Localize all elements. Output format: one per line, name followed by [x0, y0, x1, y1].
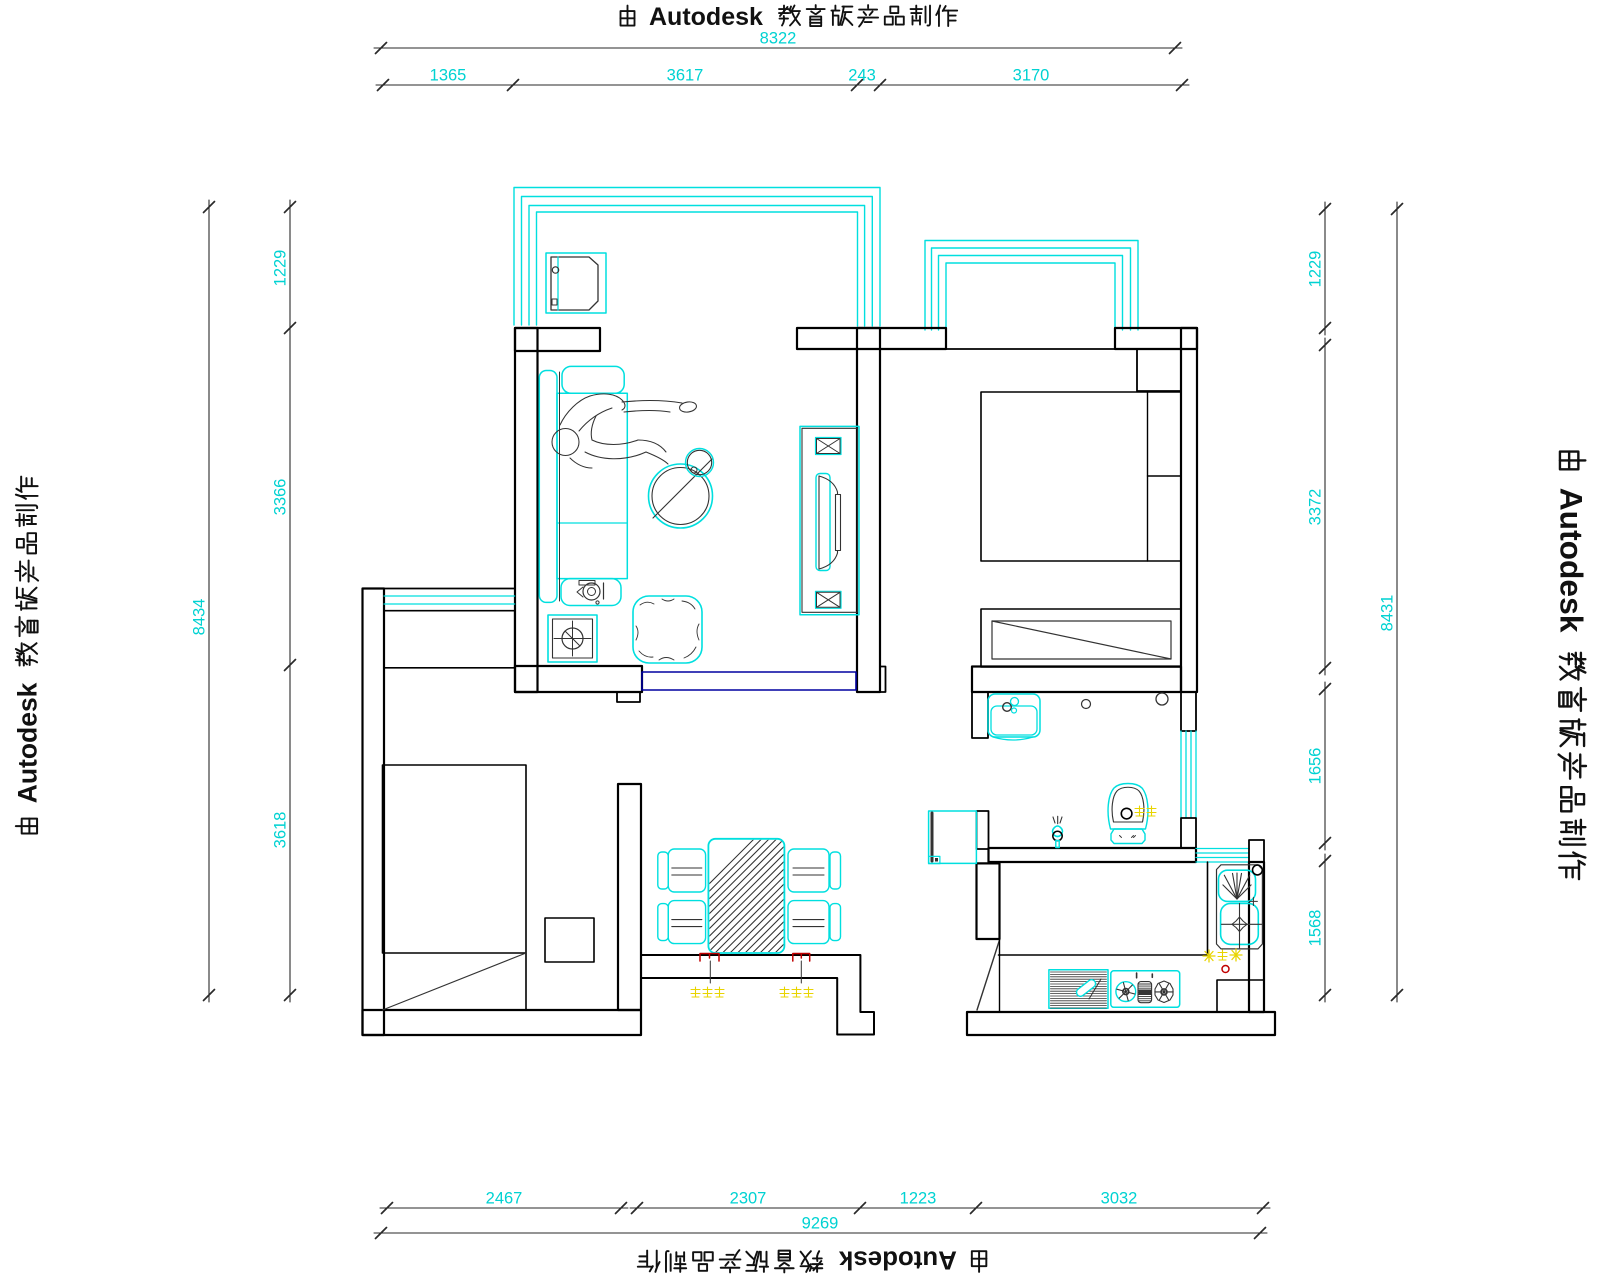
svg-text:1656: 1656 — [1307, 748, 1325, 785]
svg-text:2467: 2467 — [486, 1190, 523, 1208]
svg-text:1365: 1365 — [430, 67, 467, 85]
svg-text:1568: 1568 — [1307, 910, 1325, 947]
svg-text:9269: 9269 — [802, 1215, 839, 1233]
svg-text:3618: 3618 — [272, 812, 290, 849]
svg-text:3366: 3366 — [272, 479, 290, 516]
svg-text:3032: 3032 — [1101, 1190, 1138, 1208]
svg-text:1223: 1223 — [900, 1190, 937, 1208]
svg-text:243: 243 — [848, 67, 876, 85]
svg-text:3170: 3170 — [1013, 67, 1050, 85]
svg-text:8322: 8322 — [760, 30, 797, 48]
svg-text:2307: 2307 — [730, 1190, 767, 1208]
svg-text:3617: 3617 — [667, 67, 704, 85]
svg-text:1229: 1229 — [1307, 251, 1325, 288]
svg-text:1229: 1229 — [272, 250, 290, 287]
svg-text:8434: 8434 — [191, 599, 209, 636]
svg-text:3372: 3372 — [1307, 489, 1325, 526]
svg-text:8431: 8431 — [1379, 595, 1397, 632]
